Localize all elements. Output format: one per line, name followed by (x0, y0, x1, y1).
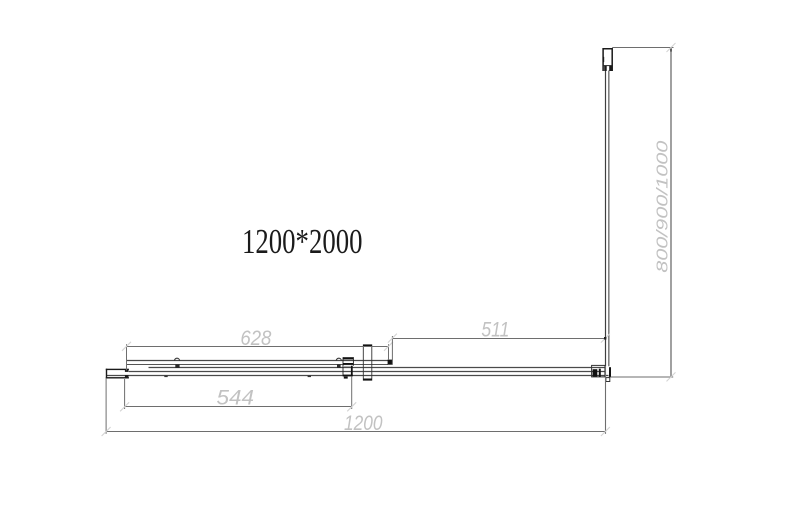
svg-text:544: 544 (217, 385, 255, 409)
svg-text:1200*2000: 1200*2000 (242, 222, 363, 261)
svg-text:628: 628 (240, 326, 271, 350)
svg-text:800/900/1000: 800/900/1000 (655, 141, 672, 273)
svg-text:511: 511 (481, 319, 509, 342)
svg-text:1200: 1200 (344, 411, 383, 435)
